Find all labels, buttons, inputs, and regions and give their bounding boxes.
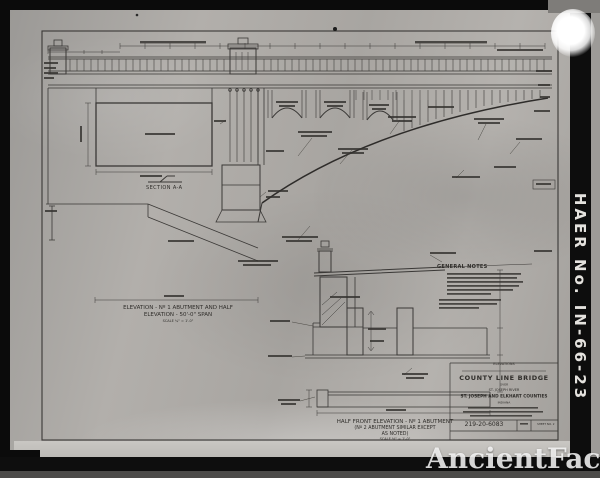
title-block-counties: ST. JOSEPH AND ELKHART COUNTIES	[458, 394, 550, 399]
archival-photo-of-bridge-drawing: SECTION A-A ELEVATION - Nº 1 ABUTMENT AN…	[0, 0, 600, 478]
elevation-caption-line1: ELEVATION - Nº 1 ABUTMENT AND HALF	[98, 305, 258, 312]
frame-top	[0, 0, 548, 10]
general-notes-heading: GENERAL NOTES	[437, 264, 488, 270]
title-block-discipline: ELEVATIONS	[466, 362, 542, 366]
half-front-caption-line1: HALF FRONT ELEVATION - Nº 1 ABUTMENT	[315, 419, 475, 426]
title-block-drawing-number: 219-20-6083	[452, 421, 516, 429]
title-block-sheet-number: SHEET NO. 2	[537, 423, 552, 426]
title-block-bridge-name: COUNTY LINE BRIDGE	[450, 374, 558, 382]
elevation-caption-scale: SCALE ¼" = 1'-0"	[122, 319, 234, 323]
photo-right-edge	[591, 0, 600, 478]
light-flare	[551, 9, 595, 57]
title-block-state: INDIANA	[472, 401, 537, 405]
elevation-caption-line2: ELEVATION - 50'-0" SPAN	[98, 312, 258, 319]
watermark-text: AncientFaces	[426, 442, 600, 475]
section-aa-label: SECTION A-A	[146, 185, 182, 191]
frame-left	[0, 0, 10, 457]
haer-number-label: HAER No. IN-66-23	[571, 177, 589, 417]
drawing-linework	[0, 0, 600, 478]
half-front-caption-scale: SCALE ½" = 1'-0"	[339, 437, 451, 441]
title-block-river: ST. JOSEPH RIVER	[466, 388, 542, 392]
title-block-over: OVER	[472, 383, 537, 387]
